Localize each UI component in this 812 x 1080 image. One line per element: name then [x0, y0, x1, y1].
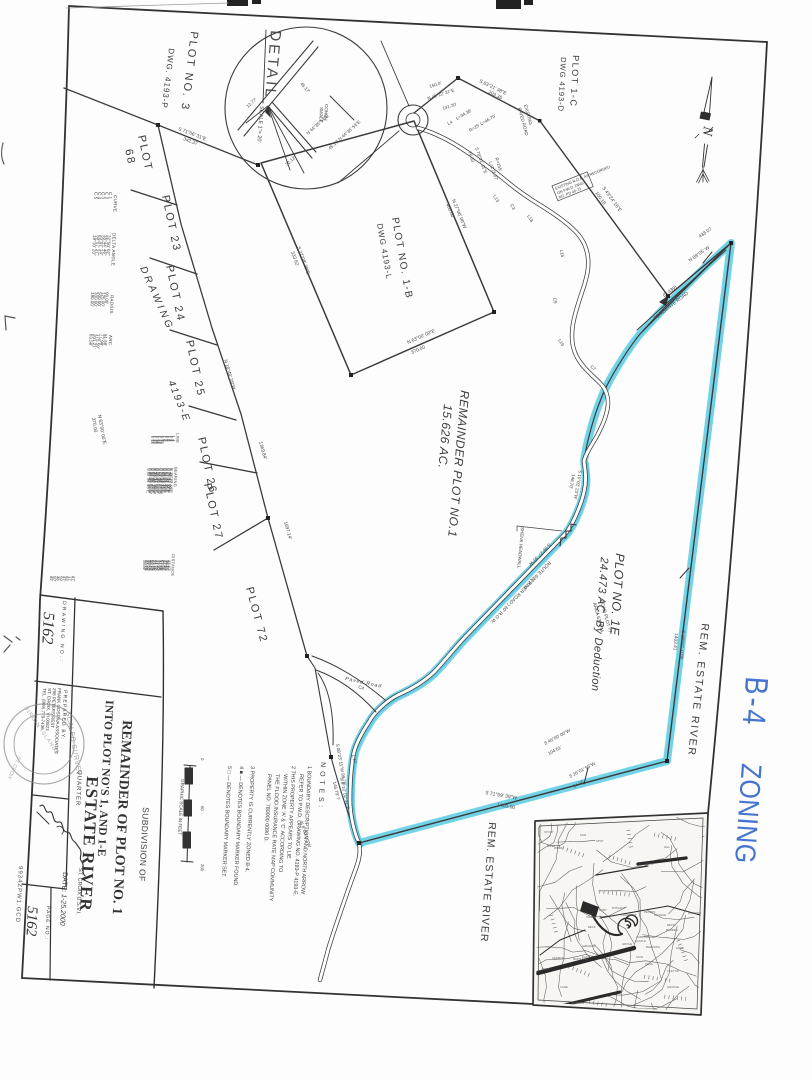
- svg-text:3 PROPERTY IS CURRENTLY ZONE: 3 PROPERTY IS CURRENTLY ZONED B-4.: [243, 766, 255, 872]
- svg-text:L19: L19: [557, 338, 565, 347]
- svg-text:9934ZPW1.GCD: 9934ZPW1.GCD: [14, 866, 23, 923]
- svg-text:N 18°49' 29"W: N 18°49' 29"W: [222, 359, 236, 391]
- svg-text:PAGE NO.:: PAGE NO.:: [43, 906, 51, 940]
- svg-text:GROVE: GROVE: [622, 942, 632, 946]
- svg-text:PROSPECT: PROSPECT: [621, 913, 637, 917]
- svg-text:PLOT 23: PLOT 23: [159, 194, 183, 253]
- svg-text:DWG 4193-L: DWG 4193-L: [375, 223, 394, 280]
- svg-text:L18: L18: [526, 214, 534, 223]
- svg-text:1369.84': 1369.84': [257, 441, 268, 460]
- svg-text:5162: 5162: [38, 612, 57, 645]
- svg-text:S 46°00' 00"W: S 46°00' 00"W: [543, 727, 572, 745]
- svg-text:CLIFTON: CLIFTON: [667, 969, 679, 973]
- svg-text:REST: REST: [542, 967, 550, 971]
- svg-text:S 26°01' 55"W: S 26°01' 55"W: [568, 760, 597, 778]
- svg-text:N: N: [699, 125, 715, 138]
- svg-text:HILL: HILL: [664, 845, 670, 849]
- svg-text:28.02': 28.02': [142, 560, 147, 571]
- svg-text:433.07: 433.07: [698, 226, 714, 240]
- svg-text:C 320°07' 14"500.00'175.59': C 320°07' 14"500.00'175.59': [95, 192, 105, 349]
- svg-text:BARREN: BARREN: [666, 928, 678, 932]
- svg-text:PLOT 72: PLOT 72: [243, 586, 270, 645]
- svg-text:CANE: CANE: [560, 985, 568, 989]
- svg-text:HOPE: HOPE: [676, 946, 684, 950]
- svg-text:85': 85': [49, 576, 54, 582]
- svg-text:CATH: CATH: [646, 862, 653, 866]
- svg-text:SION: SION: [636, 955, 643, 959]
- svg-text:12.77': 12.77': [245, 97, 257, 109]
- svg-text:GRAPHIC SCALE IN FEET: GRAPHIC SCALE IN FEET: [177, 779, 185, 836]
- svg-text:45.17': 45.17': [299, 81, 311, 93]
- svg-text:ZONING: ZONING: [729, 763, 768, 865]
- svg-text:146.70' ?: 146.70' ?: [332, 781, 341, 801]
- svg-text:R=25' L=46.70': R=25' L=46.70': [468, 113, 497, 133]
- svg-text:REM. ESTATE RIVER: REM. ESTATE RIVER: [685, 623, 711, 758]
- svg-text:C 459°07' 37"330.00'201.21': C 459°07' 37"330.00'201.21': [92, 192, 102, 349]
- svg-text:1697.14': 1697.14': [282, 521, 293, 540]
- svg-text:76.63: 76.63: [467, 151, 476, 164]
- svg-text:PANEL NO. 780000 0090 D.: PANEL NO. 780000 0090 D.: [262, 774, 272, 842]
- svg-text:PLOT NO. 3: PLOT NO. 3: [178, 31, 200, 112]
- svg-text:LEBANON: LEBANON: [582, 944, 595, 948]
- svg-text:ANNA: ANNA: [645, 962, 653, 966]
- svg-text:200: 200: [200, 864, 205, 872]
- svg-text:C7: C7: [589, 364, 597, 372]
- svg-text:DWG 4193-D: DWG 4193-D: [556, 57, 568, 112]
- svg-text:L4: L4: [447, 119, 454, 126]
- svg-text:HERMON: HERMON: [552, 956, 564, 960]
- svg-text:4193-E: 4193-E: [165, 379, 192, 424]
- svg-text:DRAWING NO.:: DRAWING NO.:: [58, 601, 67, 663]
- svg-text:PLOT 25: PLOT 25: [183, 339, 207, 398]
- svg-text:C 235°44' 46"125.00'77.99': C 235°44' 46"125.00'77.99': [99, 192, 109, 346]
- svg-text:68: 68: [122, 148, 137, 166]
- svg-text:ST. CROIX: ST. CROIX: [6, 755, 22, 780]
- svg-text:DWG. 4193-P: DWG. 4193-P: [160, 48, 176, 109]
- svg-text:104.61': 104.61': [547, 745, 562, 756]
- svg-text:ORANGE: ORANGE: [654, 913, 666, 917]
- svg-text:DATE: 1-25,2000: DATE: 1-25,2000: [58, 872, 68, 926]
- svg-text:SUBDIVISION OF: SUBDIVISION OF: [137, 807, 151, 882]
- svg-text:141.20': 141.20': [442, 102, 458, 111]
- svg-text:SCALED SURVEY: SCALED SURVEY: [64, 711, 82, 776]
- svg-text:ROUTE 69 ( RIVER ROAD ) 60' R: ROUTE 69 ( RIVER ROAD ) 60' R.O.W.: [489, 560, 552, 625]
- svg-text:ST. CROIX U.S.V.I.: ST. CROIX U.S.V.I.: [75, 868, 83, 916]
- svg-text:PLOT: PLOT: [135, 134, 154, 172]
- svg-text:N 44°35' 54"E: N 44°35' 54"E: [305, 113, 329, 135]
- svg-text:BLESSING: BLESSING: [646, 945, 660, 949]
- svg-text:L13: L13: [492, 194, 500, 203]
- svg-text:PLOT 27: PLOT 27: [201, 482, 225, 541]
- svg-text:WORK: WORK: [554, 846, 563, 850]
- svg-text:STONY: STONY: [544, 830, 554, 834]
- svg-text:LAND: LAND: [580, 957, 587, 961]
- svg-text:BECK: BECK: [588, 925, 596, 929]
- svg-text:60: 60: [200, 806, 205, 812]
- svg-text:L 18: L 18: [150, 436, 155, 445]
- svg-text:C 132°50' 02"90.00'51.58': C 132°50' 02"90.00'51.58': [103, 192, 113, 346]
- svg-text:N 49°22' 31"E: N 49°22' 31"E: [427, 88, 455, 101]
- svg-text:C 519°10' 20"190.00'63.58': C 519°10' 20"190.00'63.58': [88, 192, 98, 346]
- svg-text:C4: C4: [358, 684, 366, 691]
- svg-text:4 ■ — DENOTES BOUNDARY MARKE: 4 ■ — DENOTES BOUNDARY MARKER FOUND.: [232, 766, 244, 887]
- svg-text:C9: C9: [552, 297, 558, 304]
- svg-text:L15: L15: [559, 249, 565, 258]
- svg-text:BETSY: BETSY: [667, 923, 676, 927]
- svg-text:C3: C3: [509, 203, 516, 211]
- svg-text:0: 0: [200, 758, 205, 761]
- svg-text:DIAMOND: DIAMOND: [688, 911, 701, 915]
- svg-text:N 63°00' 00"E: N 63°00' 00"E: [406, 328, 436, 346]
- svg-text:REM. ESTATE RIVER: REM. ESTATE RIVER: [478, 822, 498, 943]
- svg-text:150.0': 150.0': [429, 80, 442, 89]
- svg-text:146.70': 146.70': [568, 474, 575, 489]
- svg-text:FAIR: FAIR: [580, 833, 586, 837]
- svg-text:B-4: B-4: [735, 675, 774, 728]
- svg-text:5 □ — DENOTES BOUNDARY MARKE: 5 □ — DENOTES BOUNDARY MARKER SET.: [220, 766, 232, 878]
- svg-text:RUBY: RUBY: [599, 908, 607, 912]
- svg-text:GRANGE: GRANGE: [667, 985, 679, 989]
- svg-text:UNION: UNION: [586, 915, 595, 919]
- svg-text:SHENK HEADWALL: SHENK HEADWALL: [516, 527, 525, 569]
- svg-text:N O T E S :: N O T E S :: [317, 762, 326, 809]
- svg-text:DETAIL: DETAIL: [261, 30, 284, 101]
- svg-text:MTPLSNT: MTPLSNT: [612, 906, 625, 910]
- svg-text:L=34.39': L=34.39': [455, 108, 473, 121]
- svg-text:S 62°56' 45"E: S 62°56' 45"E: [146, 468, 152, 493]
- svg-text:SCALE 1"= 20': SCALE 1"= 20': [255, 106, 264, 143]
- svg-text:CASTLE: CASTLE: [635, 939, 646, 943]
- svg-text:PLOT NO. 1-B: PLOT NO. 1-B: [389, 217, 414, 300]
- svg-text:45.17' N 44°35' 54"E: 45.17' N 44°35' 54"E: [327, 119, 361, 150]
- svg-text:CURVEDELTA ANGLERADIUSARC: CURVEDELTA ANGLERADIUSARC: [108, 195, 118, 346]
- svg-text:SPOT: SPOT: [596, 839, 604, 843]
- svg-text:5162: 5162: [22, 906, 40, 937]
- svg-text:PLOT 1-C: PLOT 1-C: [568, 55, 581, 108]
- svg-text:S 71°59' 39"W: S 71°59' 39"W: [485, 790, 518, 802]
